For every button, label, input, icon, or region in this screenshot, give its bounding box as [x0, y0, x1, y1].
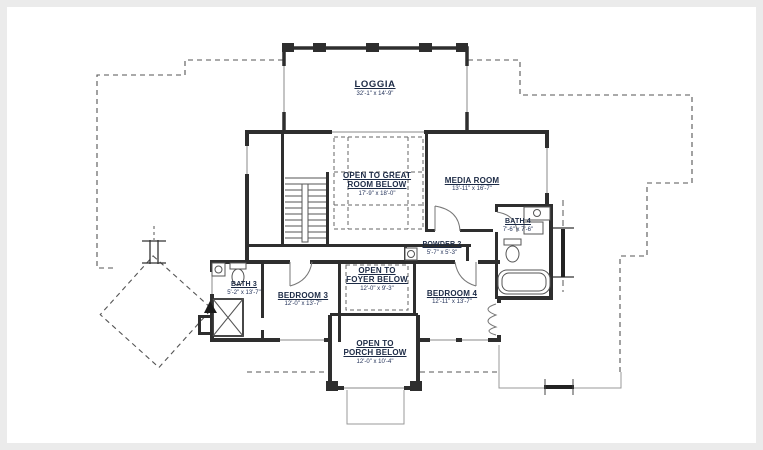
- sink-bath4: [534, 210, 541, 217]
- room-label-open-to-foyer: OPEN TO FOYER BELOW 12'-0" x 9'-3": [346, 266, 408, 293]
- room-label-bath-3: BATH 3 5'-2" x 13'-7": [227, 281, 261, 297]
- column: [366, 43, 379, 52]
- floor-plan-svg: [0, 0, 763, 450]
- room-label-media-room: MEDIA ROOM 13'-11" x 16'-7": [445, 176, 500, 194]
- room-label-loggia: LOGGIA 32'-1" x 14'-9": [354, 79, 395, 98]
- toilet-bath4: [506, 246, 519, 262]
- room-label-bedroom-4: BEDROOM 4 12'-11" x 13'-7": [427, 289, 477, 307]
- porch-column: [410, 381, 422, 391]
- sink-powder2: [408, 251, 415, 258]
- room-label-powder-2: POWDER 2 5'-7" x 5'-3": [423, 241, 462, 257]
- room-label-bath-4: BATH 4 7'-6" x 7'-6": [503, 218, 533, 234]
- floor-plan: LOGGIA 32'-1" x 14'-9" OPEN TO GREAT ROO…: [0, 0, 763, 450]
- paper: [7, 7, 756, 443]
- room-label-bedroom-3: BEDROOM 3 12'-0" x 13'-7": [278, 291, 328, 309]
- room-label-open-to-great-room: OPEN TO GREAT ROOM BELOW 17'-9" x 18'-0": [343, 171, 411, 198]
- porch-column: [326, 381, 338, 391]
- column: [282, 43, 294, 52]
- column: [313, 43, 326, 52]
- sink-bath3: [215, 266, 222, 273]
- column: [456, 43, 468, 52]
- room-label-open-to-porch: OPEN TO PORCH BELOW 12'-0" x 10'-4": [343, 339, 406, 366]
- column: [419, 43, 432, 52]
